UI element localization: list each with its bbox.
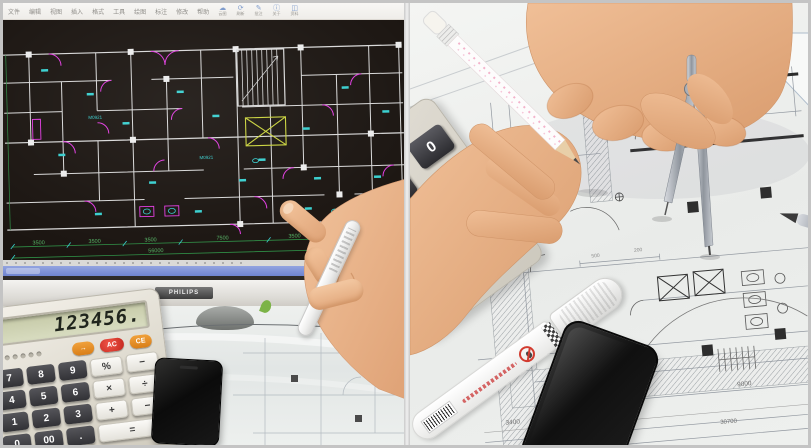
calc-key-4[interactable]: 4 bbox=[3, 389, 27, 410]
dim-200: 200 bbox=[634, 247, 643, 254]
calc-key-3[interactable]: 3 bbox=[63, 403, 93, 424]
menubar-item[interactable]: 编辑 bbox=[29, 7, 41, 16]
calc-key-5[interactable]: 5 bbox=[29, 386, 59, 407]
windows-taskbar[interactable] bbox=[3, 266, 404, 276]
sheet-edge bbox=[410, 21, 610, 107]
toolbar-refresh-button[interactable]: ⟳ 刷新 bbox=[236, 5, 245, 17]
plan-walls bbox=[619, 3, 804, 151]
calculator-keypad: 7 8 9 % − 4 5 6 × ÷ 1 2 3 + − 0 00 . = bbox=[3, 351, 167, 445]
calc-key-7[interactable]: 7 bbox=[3, 368, 24, 389]
calc-key-blank[interactable] bbox=[410, 207, 442, 251]
toolbar-about-button[interactable]: ⓘ 关于 bbox=[272, 5, 281, 17]
bathroom-fixtures bbox=[741, 268, 789, 330]
cad-menubar: 文件 编辑 视图 插入 格式 工具 绘图 标注 修改 帮助 ☁ 云图 ⟳ 刷新 … bbox=[3, 3, 404, 20]
memory-keys[interactable] bbox=[3, 351, 42, 361]
fingernail bbox=[281, 201, 296, 216]
dim-30700: 30700 bbox=[720, 418, 738, 425]
calc-key-dot[interactable]: . bbox=[66, 425, 96, 445]
calc-ce-key[interactable]: CE bbox=[129, 334, 152, 350]
calc-key-percent[interactable]: % bbox=[90, 355, 124, 377]
calc-key-2[interactable]: 2 bbox=[31, 407, 61, 428]
photo-collage: 文件 编辑 视图 插入 格式 工具 绘图 标注 修改 帮助 ☁ 云图 ⟳ 刷新 … bbox=[0, 0, 811, 448]
toolbar-cloud-button[interactable]: ☁ 云图 bbox=[218, 5, 227, 17]
toolbar-annotate-button[interactable]: ✎ 批注 bbox=[254, 5, 263, 17]
calc-key-plus[interactable]: + bbox=[95, 399, 129, 421]
calc-key-1[interactable]: 1 bbox=[3, 411, 30, 432]
dim-9000: 9000 bbox=[737, 380, 752, 388]
menubar-item[interactable]: 标注 bbox=[155, 7, 167, 16]
no-flame-icon bbox=[516, 343, 538, 365]
calc-key-1[interactable]: 1 bbox=[429, 161, 479, 209]
calc-key-multiply[interactable]: × bbox=[92, 377, 126, 399]
phone-speaker bbox=[180, 366, 198, 370]
calc-key-9[interactable]: 9 bbox=[58, 360, 88, 381]
menubar-item[interactable]: 帮助 bbox=[197, 7, 209, 16]
smartphone bbox=[151, 357, 223, 445]
philips-logo: PHILIPS bbox=[155, 287, 213, 299]
calc-ac-key[interactable]: AC bbox=[99, 337, 124, 353]
calc-key-0[interactable]: 0 bbox=[410, 123, 456, 171]
calc-key-0[interactable]: 0 bbox=[3, 433, 32, 445]
calc-key-6[interactable]: 6 bbox=[60, 382, 90, 403]
toolbar-docs-button[interactable]: ◫ 资料 bbox=[290, 5, 299, 17]
calc-correct-key[interactable]: → bbox=[71, 341, 94, 357]
calc-key-blank[interactable] bbox=[410, 169, 419, 213]
menubar-item[interactable]: 插入 bbox=[71, 7, 83, 16]
photo-divider bbox=[404, 3, 410, 445]
calc-key-8[interactable]: 8 bbox=[26, 364, 56, 385]
menubar-item[interactable]: 文件 bbox=[8, 7, 20, 16]
right-photo-blueprints: 500 200 3400 9000 30700 0 1 4 bbox=[410, 3, 811, 445]
menubar-item[interactable]: 修改 bbox=[176, 7, 188, 16]
menubar-item[interactable]: 绘图 bbox=[134, 7, 146, 16]
menubar-item[interactable]: 格式 bbox=[92, 7, 104, 16]
dim-500: 500 bbox=[591, 253, 600, 260]
cad-floorplan-screen: M0921 M0921 3500 3500 3500 7500 3500 700… bbox=[3, 20, 404, 260]
menubar-item[interactable]: 工具 bbox=[113, 7, 125, 16]
sheet-corner bbox=[740, 33, 811, 111]
calc-key-00[interactable]: 00 bbox=[34, 429, 64, 445]
menubar-item[interactable]: 视图 bbox=[50, 7, 62, 16]
calc-key-4[interactable]: 4 bbox=[452, 199, 502, 247]
dim-3400: 3400 bbox=[505, 418, 520, 426]
left-photo-cad-monitor: 文件 编辑 视图 插入 格式 工具 绘图 标注 修改 帮助 ☁ 云图 ⟳ 刷新 … bbox=[3, 3, 404, 445]
